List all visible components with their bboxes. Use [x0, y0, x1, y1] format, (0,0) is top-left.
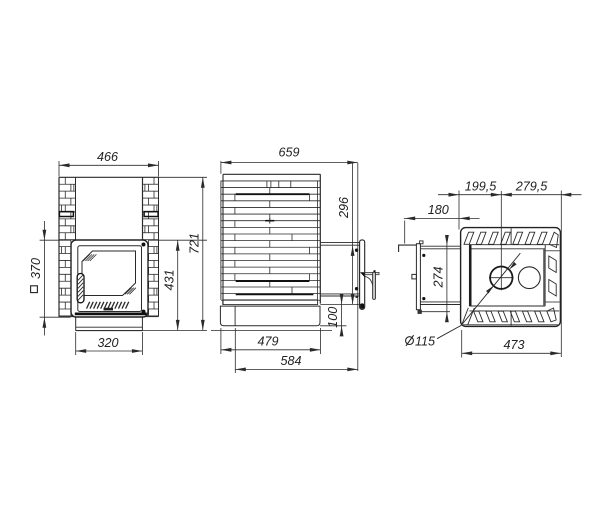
svg-text:180: 180 [428, 203, 449, 217]
svg-text:473: 473 [503, 338, 524, 352]
svg-text:721: 721 [187, 233, 201, 254]
svg-text:199,5: 199,5 [465, 179, 498, 193]
svg-text:659: 659 [278, 146, 299, 160]
svg-text:115: 115 [415, 335, 436, 349]
svg-text:431: 431 [163, 269, 177, 290]
svg-text:274: 274 [432, 266, 446, 288]
svg-text:479: 479 [257, 335, 278, 349]
svg-text:320: 320 [97, 336, 118, 350]
svg-text:370: 370 [29, 258, 43, 279]
svg-text:279,5: 279,5 [515, 179, 549, 193]
svg-text:100: 100 [326, 307, 340, 328]
svg-text:466: 466 [97, 150, 118, 164]
svg-text:296: 296 [337, 197, 351, 219]
svg-text:584: 584 [280, 354, 301, 368]
